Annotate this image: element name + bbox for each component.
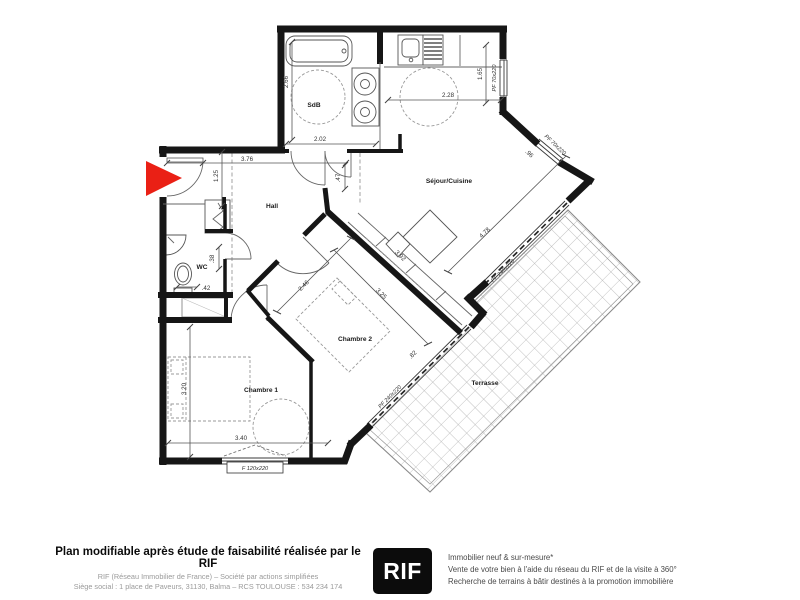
window-label-kitchen-right: PF 70x220 (492, 64, 498, 92)
rif-logo: RIF (373, 548, 432, 594)
room-label-terrasse: Terrasse (471, 380, 498, 387)
room-label-hall: Hall (266, 203, 278, 210)
footer-left-block: Plan modifiable après étude de faisabili… (52, 546, 364, 591)
footer-title: Plan modifiable après étude de faisabili… (52, 546, 364, 570)
dim-sdb-depth: 2.66 (283, 75, 290, 88)
footer-right-line2: Vente de votre bien à l'aide du réseau d… (448, 564, 677, 576)
footer-right-block: Immobilier neuf & sur-mesure* Vente de v… (448, 552, 677, 587)
dim-ch1-depth: 3.20 (181, 382, 188, 395)
dim-ch1-width: 3.40 (235, 435, 248, 442)
dim-kitchen-width: 2.28 (442, 92, 455, 99)
window-label-ch1: F 120x220 (227, 462, 283, 473)
room-label-chambre1: Chambre 1 (244, 387, 278, 394)
dim-sejour-door: .47 (335, 173, 342, 182)
floor-plan-drawing: SdB Séjour/Cuisine Hall WC Chambre 1 Cha… (0, 0, 800, 600)
room-label-wc: WC (197, 264, 208, 271)
footer-address-line: Siège social : 1 place de Paveurs, 31130… (52, 582, 364, 592)
room-label-sdb: SdB (307, 102, 320, 109)
room-label-sejour: Séjour/Cuisine (426, 178, 472, 185)
footer-company-line: RIF (Réseau Immobilier de France) – Soci… (52, 572, 364, 582)
dim-hall-width: 1.25 (213, 169, 220, 182)
dim-wc-width: .38 (209, 254, 216, 263)
rif-logo-text: RIF (383, 558, 422, 585)
dim-hall-length: 3.76 (241, 156, 254, 163)
floor-plan-page: SdB Séjour/Cuisine Hall WC Chambre 1 Cha… (0, 0, 800, 600)
dim-wc-depth: .42 (202, 285, 211, 292)
footer-right-line3: Recherche de terrains à bâtir destinés à… (448, 576, 677, 588)
room-label-chambre2: Chambre 2 (338, 336, 372, 343)
dim-sdb-width: 2.02 (314, 136, 327, 143)
footer-right-line1: Immobilier neuf & sur-mesure* (448, 552, 677, 564)
duct-shaft (182, 298, 226, 317)
dim-kitchen-depth: 1.65 (477, 67, 484, 80)
window-label-ch1-text: F 120x220 (242, 466, 269, 472)
